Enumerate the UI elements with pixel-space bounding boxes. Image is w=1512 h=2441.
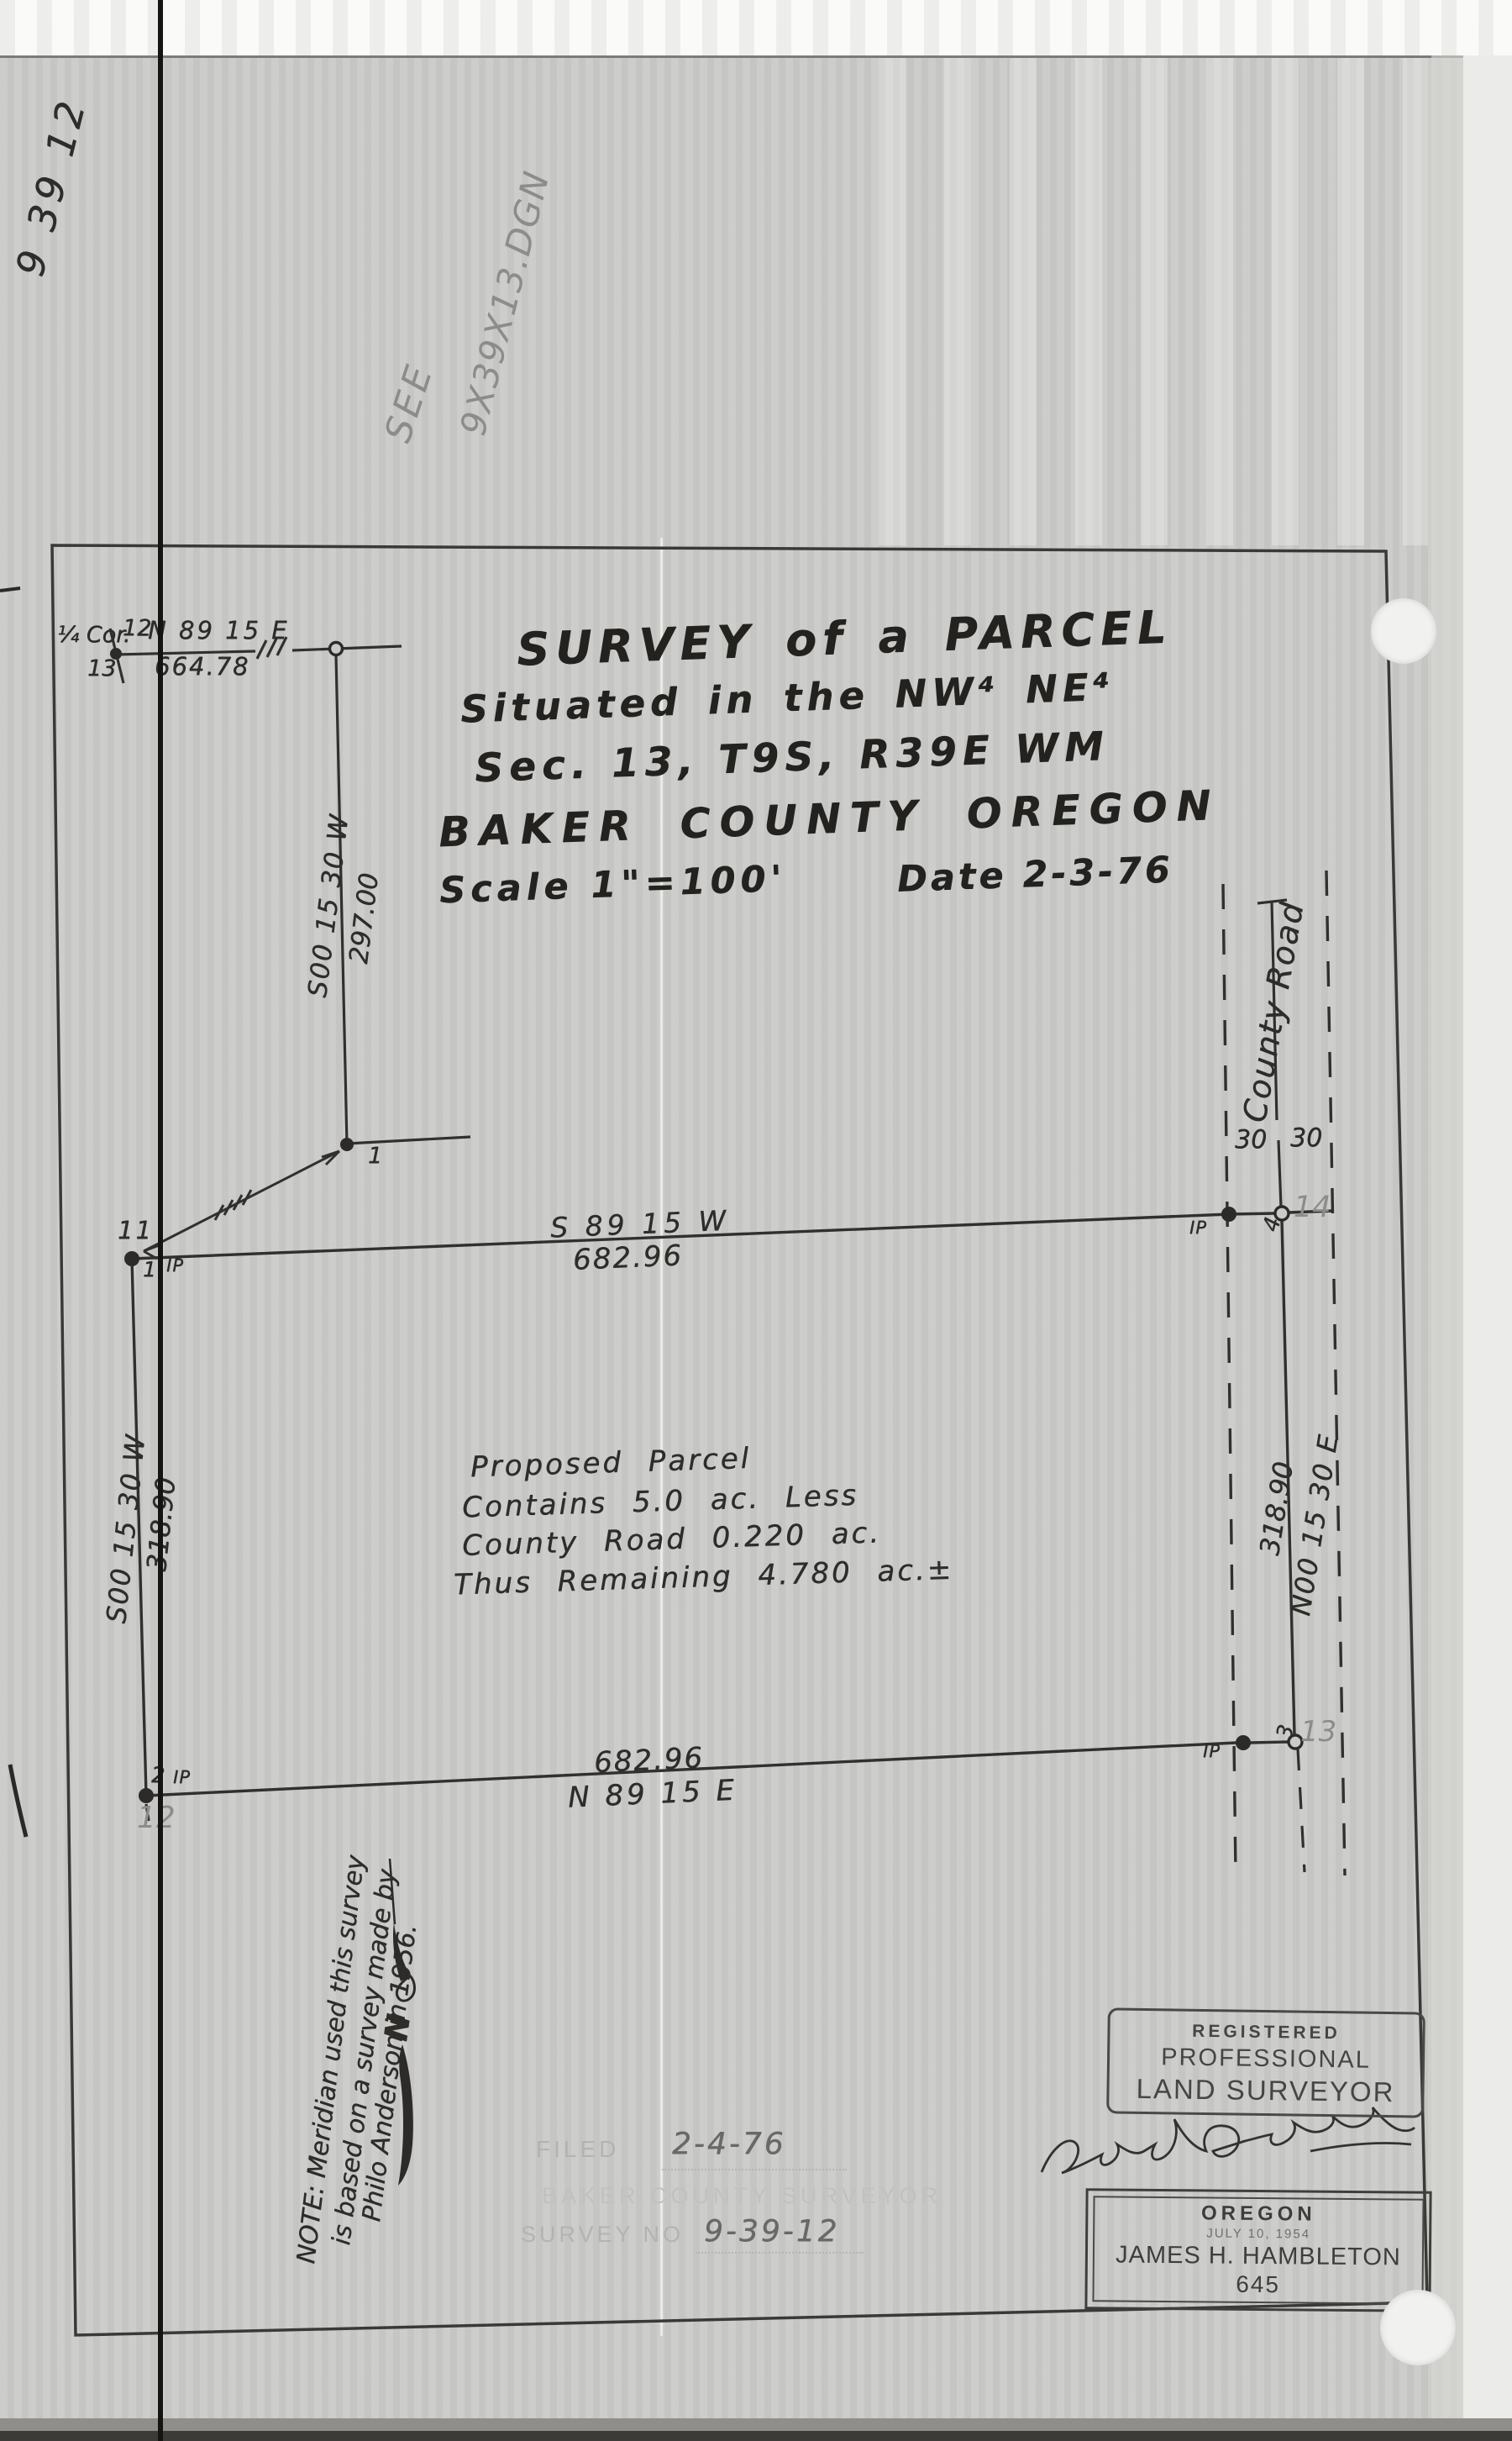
parcel-note-line3: County Road 0.220 ac. bbox=[462, 1518, 882, 1560]
punch-hole-bottom bbox=[1380, 2290, 1456, 2365]
road-half-width-right: 30 bbox=[1290, 1126, 1322, 1151]
survey-title-line2: Situated in the NW⁴ NE⁴ bbox=[459, 667, 1115, 728]
point-12-pencil: 12 bbox=[137, 1803, 176, 1833]
point-13-pencil: 13 bbox=[1300, 1718, 1336, 1746]
road-name: County Road bbox=[1238, 899, 1309, 1125]
spur-distance: 297.00 bbox=[346, 871, 383, 965]
west-line-bearing: S00 15 30 W bbox=[102, 1433, 150, 1625]
see-reference-note-line2: 9X39X13.DGN bbox=[455, 167, 555, 439]
punch-hole-top bbox=[1371, 598, 1436, 664]
filed-label: FILED bbox=[536, 2138, 619, 2161]
survey-date: Date 2-3-76 bbox=[896, 852, 1173, 897]
survey-number-underline bbox=[696, 2227, 864, 2254]
survey-title-line1: SURVEY of a PARCEL bbox=[516, 604, 1173, 672]
road-half-width-left: 30 bbox=[1235, 1128, 1267, 1153]
east-line-distance: 318.90 bbox=[1256, 1460, 1297, 1557]
filed-date-underline bbox=[662, 2144, 847, 2170]
license-stamp-inner-border bbox=[1092, 2196, 1424, 2304]
registered-stamp-line3: LAND SURVEYOR bbox=[1109, 2072, 1421, 2108]
parcel-note-line4: Thus Remaining 4.780 ac.± bbox=[454, 1555, 954, 1600]
north-line-bearing: S 89 15 W bbox=[549, 1207, 730, 1242]
registered-stamp-line1: REGISTERED bbox=[1110, 2020, 1422, 2044]
quarter-corner-label: ¼ Cor. bbox=[57, 623, 130, 646]
point-11-label: 11 bbox=[118, 1218, 154, 1243]
registered-surveyor-stamp: REGISTERED PROFESSIONAL LAND SURVEYOR bbox=[1106, 2007, 1425, 2117]
point-ne-ip: IP bbox=[1189, 1219, 1207, 1237]
filing-index-note: 9 39 12 bbox=[10, 93, 92, 280]
north-arrow-letter: N bbox=[380, 2012, 415, 2043]
parcel-note-line1: Proposed Parcel bbox=[470, 1444, 752, 1481]
point-nw-ip: IP bbox=[166, 1257, 184, 1275]
filing-office-line: BAKER COUNTY SURVEYOR bbox=[542, 2185, 942, 2207]
point-1-label: 1 bbox=[368, 1144, 382, 1167]
point-nw-number: 1 bbox=[143, 1259, 156, 1280]
section-corner-distance: 664.78 bbox=[155, 655, 249, 679]
point-14-pencil: 14 bbox=[1294, 1193, 1331, 1223]
point-4-label: 4 bbox=[1260, 1215, 1284, 1234]
registered-stamp-line2: PROFESSIONAL bbox=[1110, 2043, 1422, 2075]
survey-title-line4: BAKER COUNTY OREGON bbox=[438, 785, 1221, 853]
license-stamp: OREGON JULY 10, 1954 JAMES H. HAMBLETON … bbox=[1084, 2188, 1431, 2312]
point-se-ip: IP bbox=[1203, 1743, 1221, 1760]
south-line-bearing: N 89 15 E bbox=[567, 1776, 738, 1812]
north-line-distance: 682.96 bbox=[572, 1241, 683, 1274]
parcel-note-line2: Contains 5.0 ac. Less bbox=[462, 1481, 859, 1523]
survey-title-line3: Sec. 13, T9S, R39E WM bbox=[474, 727, 1110, 788]
point-3-label: 3 bbox=[1273, 1723, 1298, 1742]
point-sw-ip: IP bbox=[173, 1769, 191, 1786]
east-line-bearing: N00 15 30 E bbox=[1287, 1432, 1342, 1618]
section-corner-bearing: N 89 15 E bbox=[148, 618, 289, 643]
see-reference-note-line1: SEE bbox=[380, 359, 439, 446]
scan-fold-black-line bbox=[158, 0, 163, 2441]
scanned-survey-document: { "doc": { "type_note": "9 39 12", "see_… bbox=[0, 0, 1512, 2441]
spur-bearing: S00 15 30 W bbox=[305, 812, 354, 998]
survey-number-label: SURVEY NO bbox=[521, 2223, 684, 2246]
section-below: 13 bbox=[87, 657, 116, 680]
survey-scale: Scale 1"=100' bbox=[438, 861, 787, 909]
south-line-distance: 682.96 bbox=[593, 1744, 704, 1777]
